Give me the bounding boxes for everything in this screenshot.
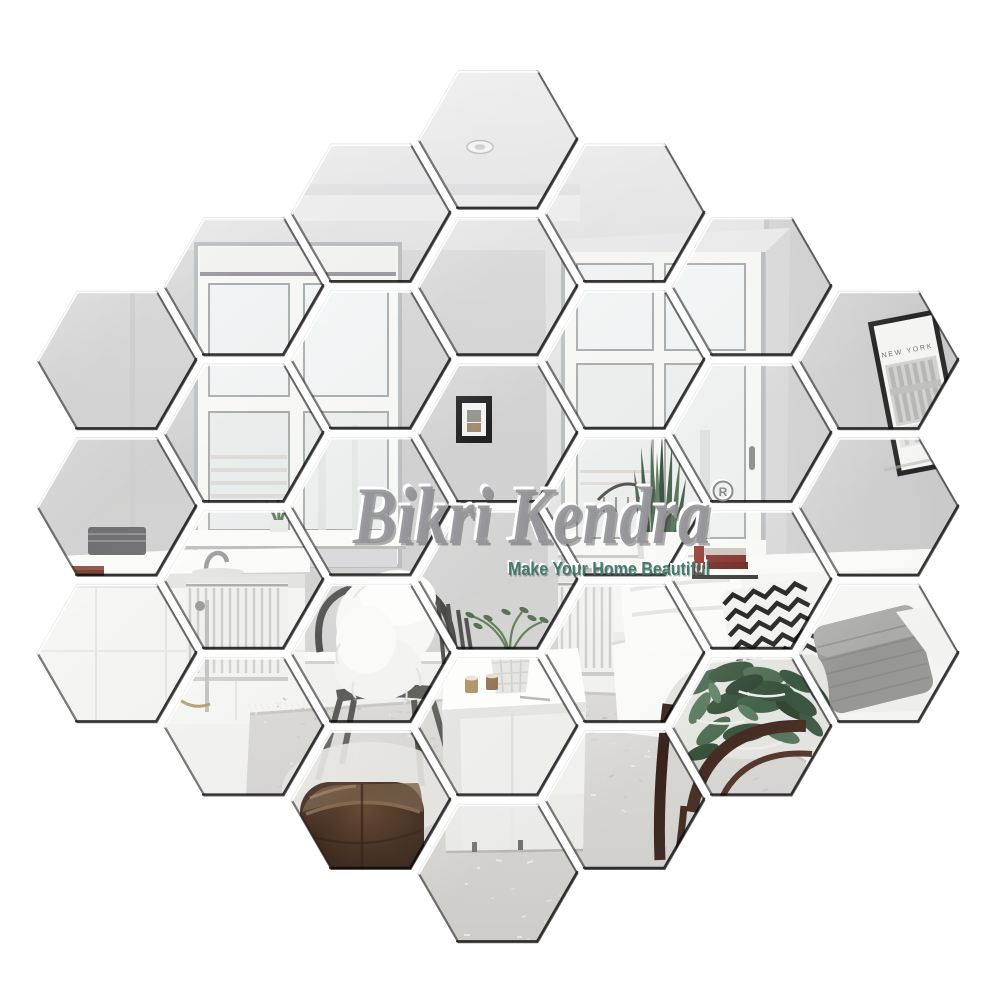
svg-text:Bikri Kendra: Bikri Kendra (352, 470, 711, 561)
svg-text:R: R (719, 485, 728, 499)
svg-text:Make Your Home Beautiful: Make Your Home Beautiful (508, 559, 710, 579)
